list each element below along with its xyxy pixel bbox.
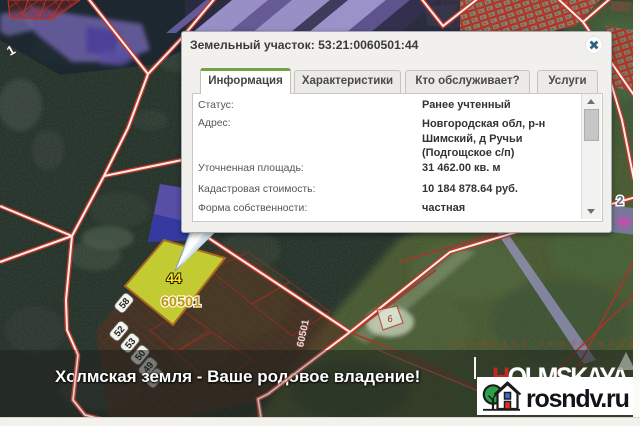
svg-text:2: 2 [616, 193, 623, 208]
svg-text:60501: 60501 [161, 295, 201, 311]
